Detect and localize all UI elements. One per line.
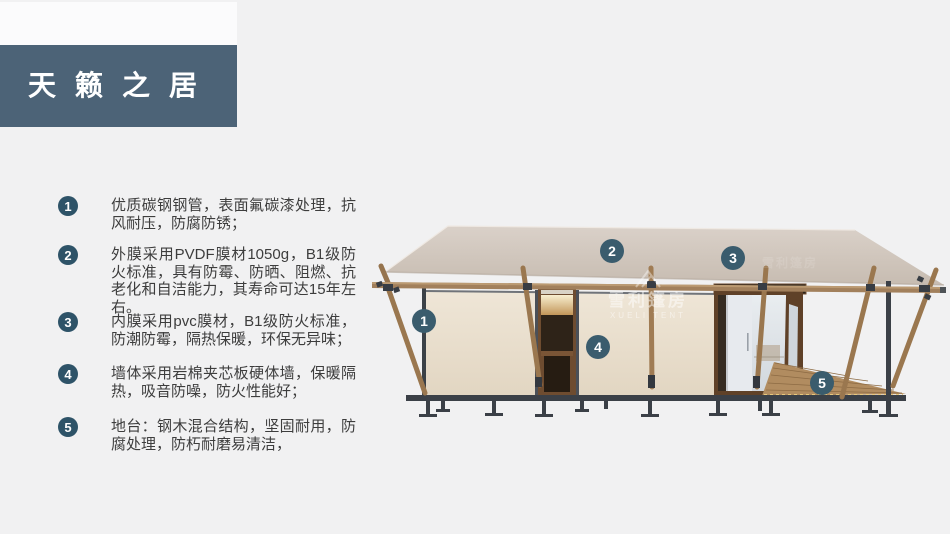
feature-item-2: 2 外膜采用PVDF膜材1050g，B1级防火标准，具有防霉、防晒、阻燃、抗老化… [58,246,358,316]
feature-item-4: 4 墙体采用岩棉夹芯板硬体墙，保暖隔热，吸音防噪，防火性能好； [58,365,358,400]
watermark-en: XUELI TENT [610,311,686,320]
slide: 天籁之居 1 优质碳钢钢管，表面氟碳漆处理，抗风耐压，防腐防锈； 2 外膜采用P… [0,0,950,534]
callout-badge-4: 4 [586,335,610,359]
feature-bullet-1: 1 [58,196,78,216]
feature-bullet-5: 5 [58,417,78,437]
feature-item-3: 3 内膜采用pvc膜材，B1级防火标准，防潮防霉，隔热保暖，环保无异味； [58,313,358,348]
header-accent-box [0,2,237,45]
feature-text-5: 地台：钢木混合结构，坚固耐用，防腐处理，防朽耐磨易清洁， [111,418,356,453]
feature-bullet-4: 4 [58,364,78,384]
feature-text-3: 内膜采用pvc膜材，B1级防火标准，防潮防霉，隔热保暖，环保无异味； [111,313,356,348]
callout-badge-2: 2 [600,239,624,263]
callout-badge-1: 1 [412,309,436,333]
roof-canopy [385,226,944,285]
callout-badge-5: 5 [810,371,834,395]
feature-bullet-2: 2 [58,245,78,265]
watermark-cn: 雪利篷房 [608,290,688,310]
left-brace-pole [387,285,425,393]
page-title: 天籁之居 [0,45,237,127]
feature-text-4: 墙体采用岩棉夹芯板硬体墙，保暖隔热，吸音防噪，防火性能好； [111,365,356,400]
feature-text-1: 优质碳钢钢管，表面氟碳漆处理，抗风耐压，防腐防锈； [111,197,356,232]
feature-item-5: 5 地台：钢木混合结构，坚固耐用，防腐处理，防朽耐磨易清洁， [58,418,358,453]
watermark-cn-faint: 雪利篷房 [762,255,818,270]
base-legs [419,401,898,417]
deck-platform [762,362,906,396]
door-handle [747,333,749,351]
callout-badge-3: 3 [721,246,745,270]
feature-bullet-3: 3 [58,312,78,332]
tent-illustration: 雪利篷房 XUELI TENT 雪利篷房 [370,205,950,435]
right-post [886,281,891,401]
door-window [541,295,573,315]
door-transom [541,290,573,294]
feature-item-1: 1 优质碳钢钢管，表面氟碳漆处理，抗风耐压，防腐防锈； [58,197,358,232]
feature-text-2: 外膜采用PVDF膜材1050g，B1级防火标准，具有防霉、防晒、阻燃、抗老化和自… [111,246,356,316]
